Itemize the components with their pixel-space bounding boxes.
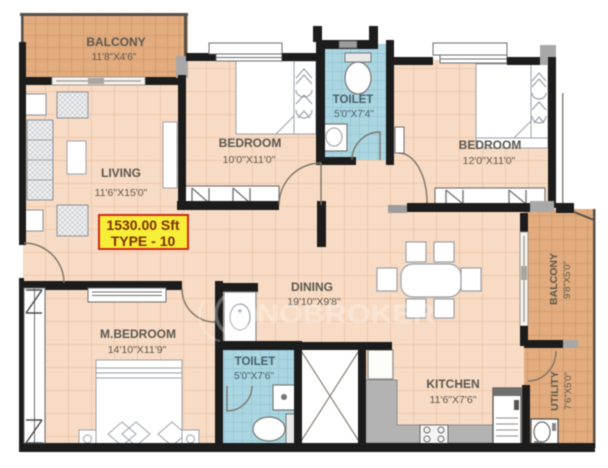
svg-text:9'8"X5'0": 9'8"X5'0" [562, 261, 573, 299]
svg-text:11'6"X15'0": 11'6"X15'0" [95, 187, 148, 199]
svg-text:KITCHEN: KITCHEN [426, 377, 479, 391]
svg-text:BEDROOM: BEDROOM [219, 136, 282, 150]
svg-text:7'6"X5'0": 7'6"X5'0" [563, 372, 574, 410]
svg-text:LIVING: LIVING [101, 166, 141, 180]
svg-text:5'0"X7'4": 5'0"X7'4" [334, 109, 374, 120]
svg-text:1530.00 Sft: 1530.00 Sft [106, 217, 179, 233]
svg-text:NOBROKER: NOBROKER [257, 299, 435, 329]
svg-text:10'0"X11'0": 10'0"X11'0" [223, 154, 276, 166]
svg-text:11'8"X4'6": 11'8"X4'6" [92, 52, 137, 63]
svg-text:11'6"X7'6": 11'6"X7'6" [430, 394, 477, 406]
svg-text:TYPE - 10: TYPE - 10 [111, 233, 176, 249]
svg-text:14'10"X11'9": 14'10"X11'9" [108, 344, 167, 356]
svg-text:TOILET: TOILET [333, 94, 374, 106]
svg-text:BALCONY: BALCONY [86, 35, 145, 49]
svg-text:BALCONY: BALCONY [548, 253, 560, 305]
svg-text:DINING: DINING [291, 280, 333, 294]
svg-text:5'0"X7'6": 5'0"X7'6" [234, 371, 274, 382]
svg-text:12'0"X11'0": 12'0"X11'0" [463, 155, 516, 167]
svg-text:UTILITY: UTILITY [549, 371, 561, 411]
svg-text:BEDROOM: BEDROOM [459, 138, 522, 152]
svg-text:TOILET: TOILET [235, 356, 276, 368]
svg-text:M.BEDROOM: M.BEDROOM [100, 327, 176, 341]
